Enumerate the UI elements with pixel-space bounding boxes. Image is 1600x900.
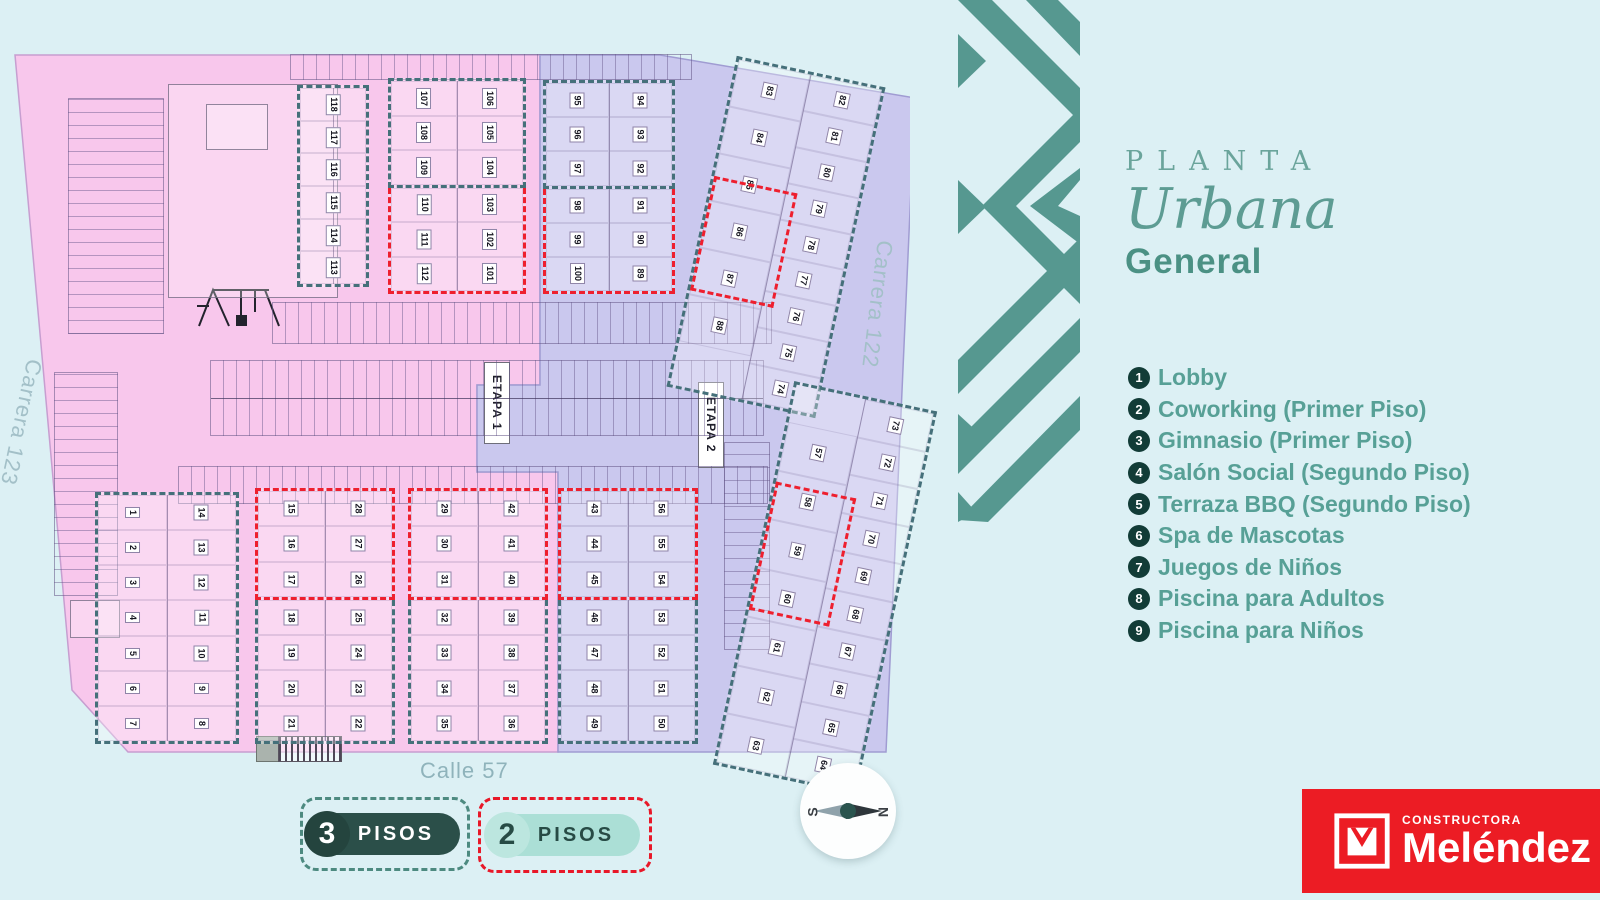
unit-number: 40 <box>504 571 519 587</box>
unit-number: 92 <box>633 160 648 176</box>
unit-number: 109 <box>417 157 432 178</box>
unit-number: 77 <box>795 271 813 290</box>
unit-number: 61 <box>767 639 785 658</box>
unit-number: 79 <box>810 199 828 218</box>
unit-cell: 28 <box>325 491 392 526</box>
amenity-number-badge: 9 <box>1128 620 1150 642</box>
building-block: 107108109106105104110111112103102101 <box>388 78 526 294</box>
unit-number: 11 <box>194 610 209 626</box>
amenity-label: Spa de Mascotas <box>1158 522 1345 549</box>
unit-number: 9 <box>194 683 209 694</box>
unit-cell: 16 <box>258 526 325 561</box>
block-section-teal: 4647484953525150 <box>558 600 698 744</box>
unit-number: 67 <box>838 642 856 661</box>
unit-cell: 12 <box>167 565 236 600</box>
unit-number: 82 <box>833 91 851 110</box>
unit-column: 424140 <box>478 491 545 597</box>
unit-number: 4 <box>125 612 140 623</box>
unit-number: 70 <box>862 529 880 548</box>
unit-number: 45 <box>587 571 602 587</box>
unit-number: 86 <box>731 222 749 241</box>
unit-number: 1 <box>125 507 140 518</box>
unit-cell: 103 <box>457 188 523 223</box>
unit-number: 17 <box>284 571 299 587</box>
unit-number: 72 <box>878 454 896 473</box>
title-block: PLANTA Urbana General <box>1125 146 1338 282</box>
unit-number: 44 <box>587 536 602 552</box>
unit-cell: 5 <box>98 636 167 671</box>
amenity-item: 2Coworking (Primer Piso) <box>1128 394 1471 426</box>
unit-number: 108 <box>417 122 432 143</box>
unit-column: 919089 <box>609 189 672 292</box>
unit-column: 565554 <box>628 491 695 597</box>
unit-column: 949392 <box>609 83 672 186</box>
unit-number: 7 <box>125 718 140 729</box>
amenity-label: Coworking (Primer Piso) <box>1158 396 1426 423</box>
amenity-item: 1Lobby <box>1128 362 1471 394</box>
unit-number: 3 <box>125 577 140 588</box>
building-block: 118117116115114113 <box>297 85 369 287</box>
2-pisos-pill: 2 PISOS <box>490 814 640 856</box>
unit-cell: 24 <box>325 635 392 670</box>
building-block: 1234567141312111098 <box>95 492 239 744</box>
unit-cell: 48 <box>561 670 628 705</box>
unit-number: 49 <box>587 715 602 731</box>
unit-cell: 98 <box>546 189 609 223</box>
unit-number: 50 <box>654 715 669 731</box>
unit-number: 52 <box>654 645 669 661</box>
unit-number: 58 <box>799 493 817 512</box>
unit-number: 55 <box>654 536 669 552</box>
unit-number: 117 <box>326 127 341 148</box>
unit-number: 59 <box>788 541 806 560</box>
unit-number: 27 <box>351 536 366 552</box>
unit-cell: 19 <box>258 635 325 670</box>
unit-cell: 27 <box>325 526 392 561</box>
unit-cell: 112 <box>391 257 457 292</box>
unit-cell: 55 <box>628 526 695 561</box>
unit-cell: 41 <box>478 526 545 561</box>
unit-cell: 116 <box>300 153 366 186</box>
unit-number: 29 <box>437 501 452 517</box>
unit-number: 81 <box>826 127 844 146</box>
unit-number: 69 <box>854 567 872 586</box>
amenity-label: Juegos de Niños <box>1158 554 1342 581</box>
unit-column: 1234567 <box>98 495 167 741</box>
unit-number: 24 <box>351 645 366 661</box>
unit-cell: 33 <box>411 635 478 670</box>
unit-number: 48 <box>587 680 602 696</box>
unit-number: 41 <box>504 536 519 552</box>
unit-number: 51 <box>654 680 669 696</box>
building-block: 9596979493929899100919089 <box>543 80 675 294</box>
unit-cell: 39 <box>478 600 545 635</box>
unit-cell: 31 <box>411 562 478 597</box>
unit-cell: 99 <box>546 223 609 257</box>
unit-number: 114 <box>326 225 341 246</box>
3-pisos-label: PISOS <box>358 823 434 846</box>
amenity-label: Salón Social (Segundo Piso) <box>1158 459 1470 486</box>
2-pisos-number: 2 <box>484 812 530 858</box>
unit-cell: 18 <box>258 600 325 635</box>
unit-column: 53525150 <box>628 600 695 741</box>
unit-number: 90 <box>633 232 648 248</box>
unit-number: 46 <box>587 609 602 625</box>
unit-cell: 11 <box>167 600 236 635</box>
unit-number: 34 <box>437 680 452 696</box>
unit-cell: 2 <box>98 530 167 565</box>
unit-number: 42 <box>504 501 519 517</box>
block-section-teal: 107108109106105104 <box>388 78 526 188</box>
unit-number: 38 <box>504 645 519 661</box>
unit-cell: 56 <box>628 491 695 526</box>
amenity-item: 8Piscina para Adultos <box>1128 583 1471 615</box>
unit-number: 115 <box>326 192 341 213</box>
3-pisos-pill: 3 PISOS <box>310 813 460 855</box>
unit-cell: 14 <box>167 495 236 530</box>
unit-number: 28 <box>351 501 366 517</box>
unit-cell: 113 <box>300 251 366 284</box>
unit-number: 19 <box>284 645 299 661</box>
unit-cell: 118 <box>300 88 366 121</box>
unit-number: 84 <box>751 128 769 147</box>
unit-cell: 35 <box>411 706 478 741</box>
unit-column: 106105104 <box>457 81 523 185</box>
amenity-number-badge: 2 <box>1128 398 1150 420</box>
unit-number: 47 <box>587 645 602 661</box>
unit-column: 282726 <box>325 491 392 597</box>
logo-name: Meléndez <box>1402 827 1591 869</box>
unit-column: 32333435 <box>411 600 478 741</box>
unit-number: 20 <box>284 680 299 696</box>
title-sub: General <box>1125 242 1338 282</box>
block-section-red: 9899100919089 <box>543 189 675 295</box>
unit-number: 32 <box>437 609 452 625</box>
unit-cell: 34 <box>411 670 478 705</box>
unit-number: 56 <box>654 501 669 517</box>
unit-number: 87 <box>721 269 739 288</box>
unit-number: 100 <box>570 263 585 284</box>
unit-cell: 108 <box>391 116 457 151</box>
unit-cell: 111 <box>391 222 457 257</box>
unit-cell: 101 <box>457 257 523 292</box>
amenity-number-badge: 4 <box>1128 462 1150 484</box>
compass-south-label: S <box>805 807 821 816</box>
parking-strip <box>68 98 164 334</box>
unit-cell: 26 <box>325 562 392 597</box>
amenity-item: 6Spa de Mascotas <box>1128 520 1471 552</box>
unit-number: 57 <box>809 444 827 463</box>
unit-cell: 23 <box>325 670 392 705</box>
unit-cell: 95 <box>546 83 609 117</box>
amenity-number-badge: 7 <box>1128 556 1150 578</box>
unit-cell: 42 <box>478 491 545 526</box>
unit-number: 22 <box>351 715 366 731</box>
unit-number: 112 <box>417 263 432 284</box>
unit-number: 91 <box>633 198 648 214</box>
unit-column: 151617 <box>258 491 325 597</box>
unit-column: 434445 <box>561 491 628 597</box>
melendez-m-icon <box>1332 811 1392 871</box>
legend-2-pisos-badge: 2 PISOS <box>478 797 652 873</box>
unit-column: 25242322 <box>325 600 392 741</box>
unit-number: 83 <box>761 81 779 100</box>
unit-cell: 117 <box>300 121 366 154</box>
unit-number: 23 <box>351 680 366 696</box>
unit-number: 68 <box>846 605 864 624</box>
unit-cell: 36 <box>478 706 545 741</box>
unit-cell: 43 <box>561 491 628 526</box>
unit-number: 104 <box>483 157 498 178</box>
logo-text: CONSTRUCTORA Meléndez <box>1402 814 1591 869</box>
unit-cell: 25 <box>325 600 392 635</box>
unit-cell: 37 <box>478 670 545 705</box>
block-section-red: 434445565554 <box>558 488 698 600</box>
unit-number: 62 <box>757 687 775 706</box>
amenity-item: 5Terraza BBQ (Segundo Piso) <box>1128 488 1471 520</box>
unit-number: 60 <box>778 590 796 609</box>
unit-number: 16 <box>284 536 299 552</box>
unit-number: 25 <box>351 609 366 625</box>
unit-number: 116 <box>326 159 341 180</box>
unit-number: 80 <box>818 163 836 182</box>
unit-number: 73 <box>886 416 904 435</box>
compass-north-label: N <box>875 807 891 817</box>
unit-number: 102 <box>483 229 498 250</box>
site-plan: ETAPA 1 ETAPA 2 118117116115114113107108… <box>10 40 910 760</box>
unit-column: 293031 <box>411 491 478 597</box>
block-section-teal: 959697949392 <box>543 80 675 189</box>
unit-column: 9899100 <box>546 189 609 292</box>
unit-cell: 45 <box>561 562 628 597</box>
amenities-legend: 1Lobby 2Coworking (Primer Piso) 3Gimnasi… <box>1128 362 1471 646</box>
unit-number: 30 <box>437 536 452 552</box>
unit-number: 94 <box>633 92 648 108</box>
unit-cell: 102 <box>457 222 523 257</box>
unit-number: 113 <box>326 257 341 278</box>
title-kicker: PLANTA <box>1125 146 1338 177</box>
unit-column: 107108109 <box>391 81 457 185</box>
unit-column: 103102101 <box>457 188 523 292</box>
compass: S N <box>800 763 896 859</box>
unit-number: 12 <box>194 575 209 591</box>
3-pisos-number: 3 <box>304 811 350 857</box>
unit-cell: 93 <box>609 117 672 151</box>
unit-cell: 115 <box>300 186 366 219</box>
amenity-number-badge: 8 <box>1128 588 1150 610</box>
unit-number: 26 <box>351 571 366 587</box>
amenity-number-badge: 3 <box>1128 430 1150 452</box>
unit-cell: 20 <box>258 670 325 705</box>
unit-cell: 90 <box>609 223 672 257</box>
legend-3-pisos-badge: 3 PISOS <box>300 797 470 871</box>
unit-cell: 91 <box>609 189 672 223</box>
unit-cell: 110 <box>391 188 457 223</box>
block-section-red: 110111112103102101 <box>388 188 526 295</box>
unit-cell: 44 <box>561 526 628 561</box>
unit-number: 14 <box>194 505 209 521</box>
2-pisos-label: PISOS <box>538 824 614 847</box>
unit-number: 65 <box>822 718 840 737</box>
unit-number: 106 <box>483 88 498 109</box>
unit-number: 110 <box>417 194 432 215</box>
unit-column: 141312111098 <box>167 495 236 741</box>
unit-cell: 30 <box>411 526 478 561</box>
unit-cell: 92 <box>609 151 672 185</box>
block-section-teal: 1234567141312111098 <box>95 492 239 744</box>
block-section-red: 151617282726 <box>255 488 395 600</box>
unit-number: 85 <box>741 175 759 194</box>
unit-column: 110111112 <box>391 188 457 292</box>
unit-cell: 49 <box>561 706 628 741</box>
amenity-number-badge: 5 <box>1128 493 1150 515</box>
unit-number: 107 <box>417 88 432 109</box>
amenity-number-badge: 6 <box>1128 525 1150 547</box>
unit-number: 98 <box>570 198 585 214</box>
unit-number: 66 <box>830 680 848 699</box>
unit-number: 105 <box>483 122 498 143</box>
unit-number: 71 <box>870 491 888 510</box>
unit-cell: 109 <box>391 150 457 185</box>
unit-cell: 4 <box>98 600 167 635</box>
amenity-number-badge: 1 <box>1128 367 1150 389</box>
background-structure-sketch <box>206 104 268 150</box>
unit-number: 37 <box>504 680 519 696</box>
unit-cell: 6 <box>98 671 167 706</box>
unit-cell: 40 <box>478 562 545 597</box>
parking-strip <box>290 54 692 80</box>
unit-cell: 32 <box>411 600 478 635</box>
unit-cell: 8 <box>167 706 236 741</box>
unit-cell: 114 <box>300 219 366 252</box>
amenity-item: 7Juegos de Niños <box>1128 552 1471 584</box>
unit-column: 959697 <box>546 83 609 186</box>
unit-cell: 104 <box>457 150 523 185</box>
unit-cell: 17 <box>258 562 325 597</box>
unit-cell: 29 <box>411 491 478 526</box>
block-section-teal: 118117116115114113 <box>297 85 369 287</box>
brand-pattern <box>918 0 1080 522</box>
amenity-label: Lobby <box>1158 364 1227 391</box>
unit-cell: 13 <box>167 530 236 565</box>
unit-number: 36 <box>504 715 519 731</box>
unit-number: 21 <box>284 715 299 731</box>
unit-cell: 97 <box>546 151 609 185</box>
unit-cell: 7 <box>98 706 167 741</box>
unit-number: 53 <box>654 609 669 625</box>
unit-number: 93 <box>633 126 648 142</box>
unit-cell: 38 <box>478 635 545 670</box>
unit-number: 103 <box>483 194 498 215</box>
unit-number: 63 <box>747 736 765 755</box>
street-calle-57: Calle 57 <box>420 758 509 784</box>
unit-number: 2 <box>125 542 140 553</box>
amenity-label: Terraza BBQ (Segundo Piso) <box>1158 491 1471 518</box>
unit-number: 74 <box>772 380 790 399</box>
unit-cell: 50 <box>628 706 695 741</box>
unit-number: 88 <box>711 316 729 335</box>
unit-cell: 22 <box>325 706 392 741</box>
unit-cell: 3 <box>98 565 167 600</box>
unit-number: 8 <box>194 718 209 729</box>
unit-number: 111 <box>417 229 432 249</box>
amenity-item: 3Gimnasio (Primer Piso) <box>1128 425 1471 457</box>
page: { "title": {"kicker": "PLANTA", "main": … <box>0 0 1600 900</box>
block-section-teal: 3233343539383736 <box>408 600 548 744</box>
amenity-item: 4Salón Social (Segundo Piso) <box>1128 457 1471 489</box>
unit-number: 78 <box>803 235 821 254</box>
unit-cell: 54 <box>628 562 695 597</box>
amenity-item: 9Piscina para Niños <box>1128 615 1471 647</box>
unit-number: 10 <box>194 645 209 661</box>
unit-column: 18192021 <box>258 600 325 741</box>
unit-column: 39383736 <box>478 600 545 741</box>
unit-number: 101 <box>483 263 498 284</box>
unit-number: 35 <box>437 715 452 731</box>
amenity-label: Gimnasio (Primer Piso) <box>1158 427 1412 454</box>
unit-cell: 10 <box>167 636 236 671</box>
unit-cell: 15 <box>258 491 325 526</box>
unit-number: 89 <box>633 266 648 282</box>
unit-number: 43 <box>587 501 602 517</box>
building-block: 2930314241403233343539383736 <box>408 488 548 744</box>
unit-cell: 53 <box>628 600 695 635</box>
unit-cell: 51 <box>628 670 695 705</box>
unit-number: 33 <box>437 645 452 661</box>
title-main: Urbana <box>1125 181 1338 240</box>
unit-number: 13 <box>194 540 209 556</box>
unit-cell: 52 <box>628 635 695 670</box>
unit-cell: 106 <box>457 81 523 116</box>
unit-number: 18 <box>284 609 299 625</box>
unit-cell: 96 <box>546 117 609 151</box>
unit-number: 15 <box>284 501 299 517</box>
unit-number: 99 <box>570 232 585 248</box>
unit-number: 6 <box>125 683 140 694</box>
unit-cell: 100 <box>546 257 609 291</box>
building-block: 1516172827261819202125242322 <box>255 488 395 744</box>
unit-cell: 1 <box>98 495 167 530</box>
unit-number: 75 <box>780 343 798 362</box>
unit-number: 97 <box>570 160 585 176</box>
unit-cell: 9 <box>167 671 236 706</box>
unit-number: 118 <box>326 94 341 115</box>
unit-number: 95 <box>570 92 585 108</box>
constructora-melendez-logo: CONSTRUCTORA Meléndez <box>1302 789 1600 893</box>
unit-cell: 47 <box>561 635 628 670</box>
block-section-red: 293031424140 <box>408 488 548 600</box>
unit-cell: 46 <box>561 600 628 635</box>
unit-number: 76 <box>787 307 805 326</box>
unit-cell: 94 <box>609 83 672 117</box>
unit-number: 5 <box>125 648 140 659</box>
unit-number: 39 <box>504 609 519 625</box>
unit-cell: 21 <box>258 706 325 741</box>
building-block: 4344455655544647484953525150 <box>558 488 698 744</box>
unit-number: 96 <box>570 126 585 142</box>
unit-cell: 105 <box>457 116 523 151</box>
amenity-label: Piscina para Niños <box>1158 617 1364 644</box>
unit-number: 54 <box>654 571 669 587</box>
unit-cell: 89 <box>609 257 672 291</box>
amenity-label: Piscina para Adultos <box>1158 585 1385 612</box>
unit-cell: 107 <box>391 81 457 116</box>
unit-number: 31 <box>437 571 452 587</box>
unit-column: 118117116115114113 <box>300 88 366 284</box>
unit-column: 46474849 <box>561 600 628 741</box>
block-section-teal: 1819202125242322 <box>255 600 395 744</box>
